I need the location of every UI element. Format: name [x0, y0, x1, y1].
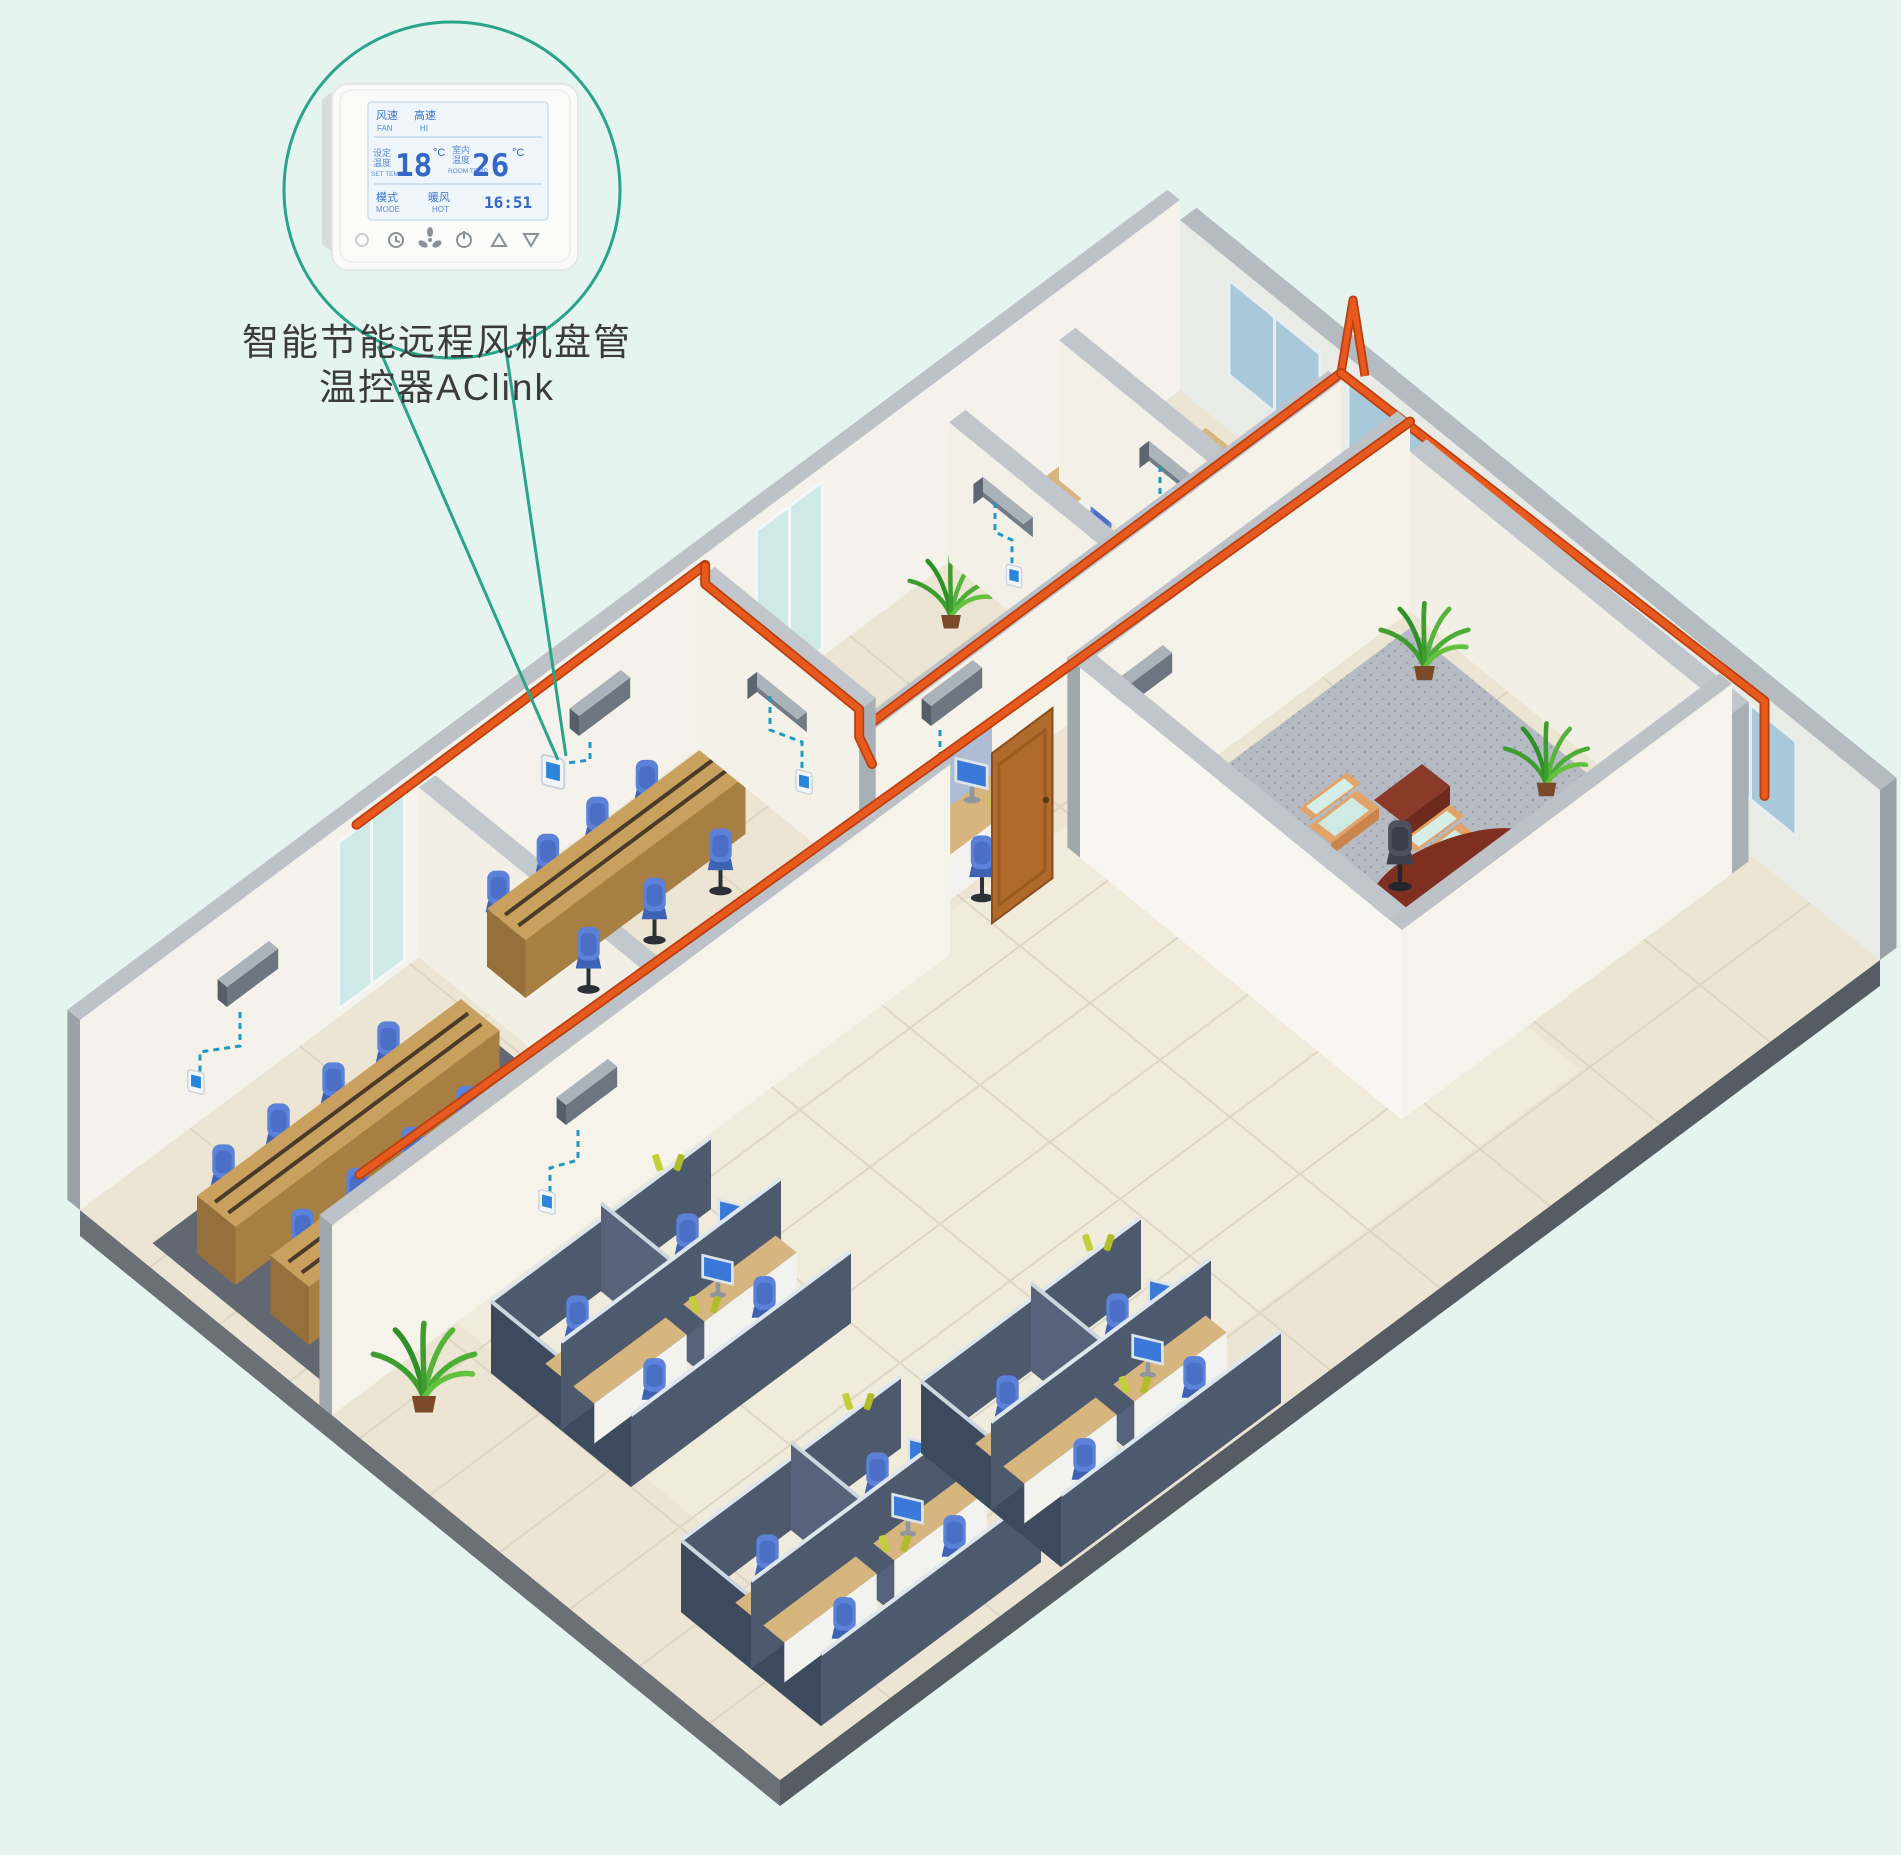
wall-thermostat-4	[796, 769, 812, 795]
lcd-room-label-cn-1: 室内	[452, 144, 470, 155]
wall-thermostat-2	[539, 1189, 555, 1215]
wall-thermostat-5	[1006, 564, 1021, 588]
lcd-fan-label-en: FAN	[377, 124, 393, 133]
lcd-fan-label-cn: 风速	[376, 109, 398, 122]
illustration-canvas: 风速 FAN 高速 HI 设定 温度 SET TEMP 18 °C 室内 温度 …	[0, 0, 1901, 1855]
lcd-set-label-cn-1: 设定	[373, 147, 391, 158]
lcd-mode-value-en: HOT	[432, 205, 449, 214]
featured-wall-thermostat	[542, 754, 565, 790]
lcd-mode-label-en: MODE	[376, 205, 400, 214]
door-handle	[1043, 797, 1049, 803]
lcd-set-temp-value: 18	[395, 148, 432, 184]
callout-pointer-line	[378, 346, 558, 760]
lcd-time: 16:51	[484, 193, 532, 212]
office-isometric-scene: 风速 FAN 高速 HI 设定 温度 SET TEMP 18 °C 室内 温度 …	[0, 0, 1901, 1855]
lcd-fan-speed-en: HI	[420, 124, 428, 133]
lcd-set-temp-unit: °C	[433, 147, 445, 159]
lcd-mode-label-cn: 模式	[376, 191, 398, 204]
lcd-set-label-cn-2: 温度	[373, 157, 391, 168]
lcd-mode-value-cn: 暖风	[428, 191, 450, 204]
lcd-room-label-cn-2: 温度	[452, 154, 470, 165]
thermostat-product: 风速 FAN 高速 HI 设定 温度 SET TEMP 18 °C 室内 温度 …	[322, 84, 578, 270]
caption-line-2: 温控器AClink	[319, 367, 555, 408]
lcd-fan-speed-cn: 高速	[414, 108, 436, 122]
caption-line-1: 智能节能远程风机盘管	[242, 322, 632, 363]
wall-thermostat-1	[188, 1069, 204, 1095]
lcd-room-temp-unit: °C	[512, 147, 524, 159]
lcd-room-temp-value: 26	[472, 148, 509, 184]
